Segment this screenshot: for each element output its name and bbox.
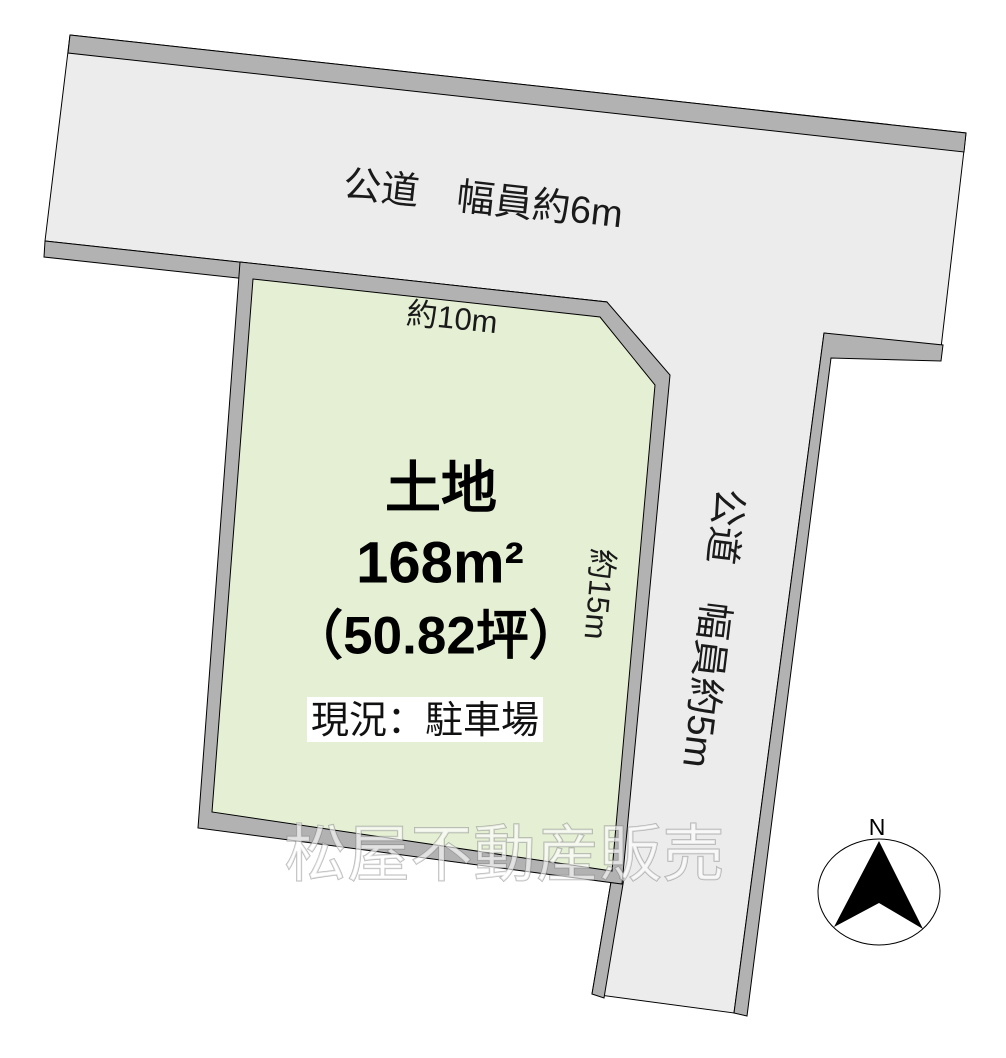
- land-plot-diagram-page: 公道 幅員約6m 約10m 約15m 公道 幅員約5m 土地 168m² （50…: [0, 0, 1006, 1058]
- watermark: 松屋不動産販売: [284, 821, 725, 890]
- parcel-status-label: 現況：駐車場: [311, 700, 539, 742]
- parcel-area-m2: 168m²: [356, 531, 524, 596]
- parcel-title: 土地: [385, 457, 497, 520]
- compass: N: [818, 814, 940, 945]
- compass-north-label: N: [869, 814, 886, 840]
- site-plan-svg: 公道 幅員約6m 約10m 約15m 公道 幅員約5m 土地 168m² （50…: [0, 0, 1006, 1058]
- compass-needle-icon: [834, 841, 923, 929]
- parcel-area-tsubo: （50.82坪）: [290, 606, 582, 666]
